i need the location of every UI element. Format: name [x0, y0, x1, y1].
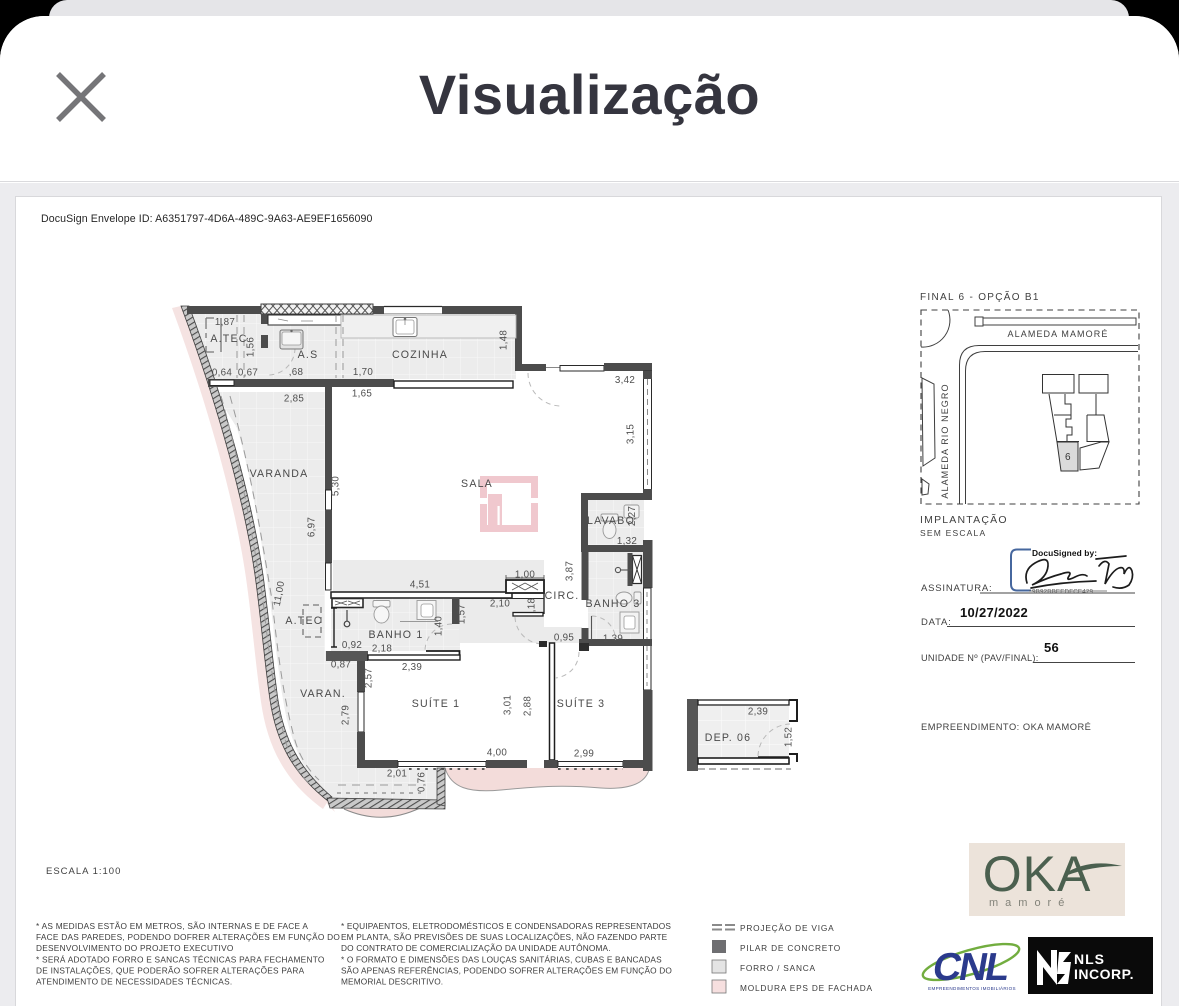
- svg-text:DO CONTRATO DE COMERCIALIZAÇÃO: DO CONTRATO DE COMERCIALIZAÇÃO DA UNIDAD…: [341, 943, 611, 953]
- svg-text:FORRO / SANCA: FORRO / SANCA: [740, 963, 816, 973]
- svg-text:A.TEC: A.TEC: [285, 615, 322, 627]
- svg-text:MOLDURA EPS DE FACHADA: MOLDURA EPS DE FACHADA: [740, 983, 873, 993]
- svg-text:FINAL 6 - OPÇÃO B1: FINAL 6 - OPÇÃO B1: [920, 290, 1040, 303]
- svg-text:1,00: 1,00: [515, 570, 536, 581]
- svg-text:* O FORMATO E DIMENSÕES DAS LO: * O FORMATO E DIMENSÕES DAS LOUÇAS SANIT…: [341, 954, 662, 964]
- svg-text:IMPLANTAÇÃO: IMPLANTAÇÃO: [920, 513, 1008, 526]
- svg-text:EMPREENDIMENTO: OKA MAMORÉ: EMPREENDIMENTO: OKA MAMORÉ: [921, 722, 1091, 732]
- svg-text:3,42: 3,42: [615, 375, 635, 386]
- svg-text:CIRC.: CIRC.: [545, 590, 580, 602]
- svg-text:mamoré: mamoré: [989, 897, 1071, 909]
- svg-text:OKA: OKA: [983, 846, 1092, 902]
- svg-text:PROJEÇÃO DE VIGA: PROJEÇÃO DE VIGA: [740, 923, 834, 933]
- svg-text:1,52: 1,52: [784, 727, 795, 747]
- svg-text:0,67: 0,67: [238, 368, 258, 379]
- svg-text:SALA: SALA: [461, 478, 493, 490]
- svg-text:0,64: 0,64: [212, 368, 233, 379]
- svg-text:1,87: 1,87: [215, 317, 235, 328]
- svg-text:1,65: 1,65: [352, 389, 373, 400]
- svg-text:* AS MEDIDAS ESTÃO EM METROS,: * AS MEDIDAS ESTÃO EM METROS, SÃO INTERN…: [36, 921, 308, 931]
- svg-text:EM PLANTA, SÃO PREVISÕES DE SU: EM PLANTA, SÃO PREVISÕES DE SUAS LOCALIZ…: [341, 932, 668, 942]
- svg-text:DATA:: DATA:: [921, 617, 952, 628]
- svg-text:BANHO 1: BANHO 1: [369, 629, 424, 641]
- svg-text:4,00: 4,00: [487, 748, 508, 759]
- svg-text:2,01: 2,01: [387, 769, 407, 780]
- svg-text:1,48: 1,48: [499, 330, 510, 351]
- svg-text:3,01: 3,01: [503, 695, 514, 715]
- svg-text:2,57: 2,57: [364, 668, 375, 688]
- svg-text:VARAN.: VARAN.: [300, 688, 346, 700]
- svg-text:A.S: A.S: [298, 349, 319, 361]
- svg-text:DocuSigned by:: DocuSigned by:: [1032, 548, 1097, 558]
- svg-text:5,30: 5,30: [331, 476, 342, 497]
- svg-text:1,70: 1,70: [353, 367, 374, 378]
- svg-text:DocuSign Envelope ID: A6351797: DocuSign Envelope ID: A6351797-4D6A-489C…: [41, 213, 372, 225]
- svg-text:0,95: 0,95: [554, 633, 575, 644]
- svg-text:0,76: 0,76: [417, 772, 428, 793]
- svg-text:VARANDA: VARANDA: [250, 468, 309, 480]
- svg-text:1,39: 1,39: [603, 634, 623, 645]
- svg-text:FACE DAS PAREDES, PODENDO DOFR: FACE DAS PAREDES, PODENDO DOFRER ALTERAÇ…: [36, 932, 340, 942]
- svg-text:DESENVOLVIMENTO DO PROJETO EXE: DESENVOLVIMENTO DO PROJETO EXECUTIVO: [36, 943, 234, 953]
- svg-text:3,87: 3,87: [565, 561, 576, 581]
- svg-text:1,32: 1,32: [617, 536, 637, 547]
- svg-text:1,57: 1,57: [457, 604, 468, 624]
- svg-text:ESCALA 1:100: ESCALA 1:100: [46, 866, 121, 877]
- svg-text:2,27: 2,27: [627, 506, 638, 526]
- svg-text:,18: ,18: [527, 597, 538, 612]
- svg-text:56: 56: [1044, 640, 1059, 655]
- svg-text:2,79: 2,79: [341, 705, 352, 725]
- svg-text:2,39: 2,39: [748, 707, 768, 718]
- svg-text:EMPREENDIMENTOS IMOBILIÁRIOS: EMPREENDIMENTOS IMOBILIÁRIOS: [928, 985, 1016, 991]
- svg-text:* SERÁ ADOTADO FORRO E SANCAS: * SERÁ ADOTADO FORRO E SANCAS TÉCNICAS P…: [36, 954, 325, 964]
- svg-text:2,99: 2,99: [574, 749, 594, 760]
- svg-text:INCORP.: INCORP.: [1074, 966, 1134, 982]
- svg-text:BANHO 3: BANHO 3: [586, 598, 641, 610]
- svg-text:SUÍTE 1: SUÍTE 1: [412, 697, 460, 710]
- svg-text:CNL: CNL: [930, 945, 1013, 989]
- svg-text:MEMORIAL DESCRITIVO.: MEMORIAL DESCRITIVO.: [341, 977, 443, 987]
- svg-text:2,10: 2,10: [490, 599, 511, 610]
- svg-text:SUÍTE 3: SUÍTE 3: [557, 697, 605, 710]
- svg-text:PILAR DE CONCRETO: PILAR DE CONCRETO: [740, 943, 841, 953]
- svg-text:10/27/2022: 10/27/2022: [960, 605, 1028, 620]
- svg-text:2,18: 2,18: [372, 644, 393, 655]
- svg-text:A.TEC: A.TEC: [210, 333, 247, 345]
- svg-text:4,51: 4,51: [410, 580, 430, 591]
- svg-text:0,87: 0,87: [331, 660, 351, 671]
- svg-text:9B92BBEEDFCE429: 9B92BBEEDFCE429: [1032, 589, 1093, 596]
- svg-text:SÃO APENAS REFERÊNCIAS, PODEND: SÃO APENAS REFERÊNCIAS, PODENDO SOFRER A…: [341, 965, 672, 975]
- svg-text:1,40: 1,40: [434, 616, 445, 637]
- svg-text:ASSINATURA:: ASSINATURA:: [921, 583, 992, 594]
- svg-text:6,97: 6,97: [307, 517, 318, 537]
- svg-text:,68: ,68: [289, 367, 304, 378]
- svg-text:2,85: 2,85: [284, 394, 305, 405]
- svg-text:0,92: 0,92: [342, 640, 362, 651]
- svg-text:UNIDADE Nº (PAV/FINAL):: UNIDADE Nº (PAV/FINAL):: [921, 653, 1039, 663]
- svg-text:DE INSTALAÇÕES, QUE PODERÃO SO: DE INSTALAÇÕES, QUE PODERÃO SOFRER ALTER…: [36, 965, 305, 975]
- svg-text:ALAMEDA RIO NEGRO: ALAMEDA RIO NEGRO: [940, 383, 950, 498]
- svg-text:6: 6: [1065, 452, 1071, 463]
- svg-text:NLS: NLS: [1074, 951, 1105, 967]
- svg-text:1,56: 1,56: [246, 337, 257, 358]
- svg-text:SEM ESCALA: SEM ESCALA: [920, 528, 986, 538]
- svg-text:3,15: 3,15: [626, 424, 637, 445]
- svg-text:2,88: 2,88: [523, 696, 534, 717]
- svg-text:COZINHA: COZINHA: [392, 349, 448, 361]
- svg-text:2,39: 2,39: [402, 662, 422, 673]
- svg-text:ALAMEDA MAMORÉ: ALAMEDA MAMORÉ: [1008, 329, 1109, 339]
- svg-text:DEP. 06: DEP. 06: [705, 732, 752, 744]
- svg-text:* EQUIPAENTOS, ELETRODOMÉSTICO: * EQUIPAENTOS, ELETRODOMÉSTICOS E CONDEN…: [341, 921, 671, 931]
- svg-text:ATENDIMENTO DE NECESSIDADES TÉ: ATENDIMENTO DE NECESSIDADES TÉCNICAS.: [36, 977, 232, 987]
